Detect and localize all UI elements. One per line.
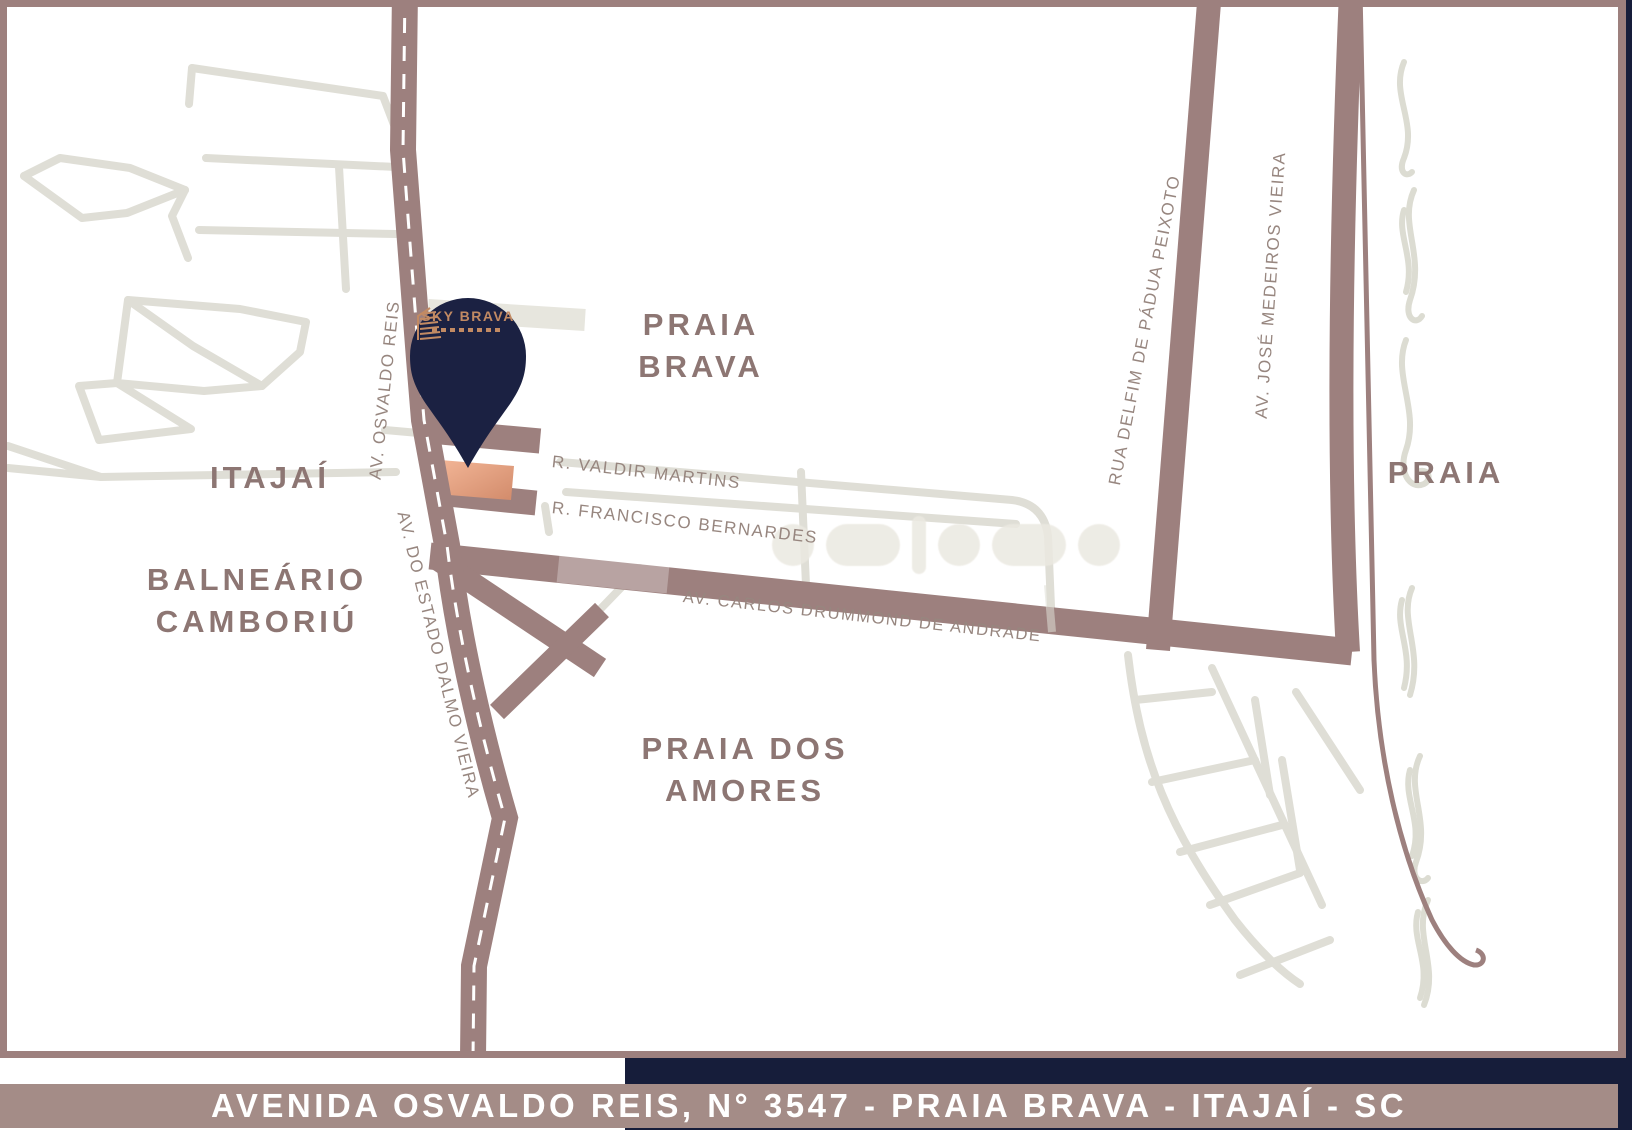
ghost-watermark xyxy=(772,516,1120,574)
road-jose-medeiros xyxy=(1342,0,1351,652)
region-label-balneario-camboriu: BALNEÁRIO CAMBORIÚ xyxy=(147,559,367,643)
sky-brava-tower-icon xyxy=(410,306,444,342)
region-label-praia-brava: PRAIA BRAVA xyxy=(638,304,764,388)
region-label-itajai: ITAJAÍ xyxy=(210,457,330,499)
road-delfim-peixoto xyxy=(1158,0,1210,650)
map-canvas: SKY BRAVA PRAIA BRAVA ITAJAÍ BALNEÁRIO C… xyxy=(0,0,1626,1058)
pin-logo: SKY BRAVA xyxy=(410,306,526,398)
address-text: AVENIDA OSVALDO REIS, N° 3547 - PRAIA BR… xyxy=(211,1087,1407,1125)
region-label-praia: PRAIA xyxy=(1388,452,1504,494)
road-osvaldo-reis-dalmo-vieira xyxy=(403,0,505,1058)
address-banner: AVENIDA OSVALDO REIS, N° 3547 - PRAIA BR… xyxy=(0,1084,1618,1128)
beach-wave-marks xyxy=(1400,62,1429,1005)
location-map-page: SKY BRAVA PRAIA BRAVA ITAJAÍ BALNEÁRIO C… xyxy=(0,0,1632,1130)
region-label-praia-dos-amores: PRAIA DOS AMORES xyxy=(641,728,848,812)
